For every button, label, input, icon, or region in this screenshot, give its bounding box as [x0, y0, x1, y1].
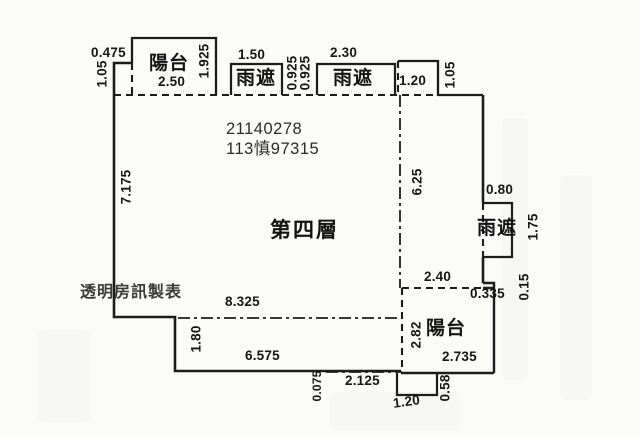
dim-canopy2-depth: 0.925: [298, 56, 312, 91]
dim-br-step-width: 0.335: [470, 287, 505, 301]
dim-balcony-br-height: 2.82: [409, 321, 423, 348]
dim-balcony-br-top: 2.40: [424, 270, 451, 284]
dim-notch-height: 1.05: [443, 61, 457, 88]
credit-watermark: 透明房訊製表: [80, 285, 182, 301]
dim-balcony-top-depth: 1.925: [197, 44, 211, 79]
dim-bottom-wall: 6.575: [245, 349, 280, 363]
dim-canopy1-width: 1.50: [238, 48, 265, 62]
dim-bottom-measure: 2.125: [345, 374, 380, 388]
floor-plan-canvas: 陽台 雨遮 雨遮 雨遮 陽台 第四層 21140278 113慎97315 透明…: [0, 0, 640, 436]
room-label-balcony-bottom: 陽台: [426, 319, 466, 338]
room-label-canopy-mid: 雨遮: [333, 69, 373, 88]
dim-bl-step-height: 1.80: [189, 325, 203, 352]
registry-number: 113慎97315: [226, 141, 319, 158]
case-number: 21140278: [226, 121, 302, 138]
floor-title: 第四層: [270, 220, 339, 241]
dim-duct-height: 0.58: [438, 374, 452, 401]
dim-interior-height: 6.25: [410, 168, 424, 195]
dim-left-wall: 7.175: [119, 170, 133, 205]
dim-br-step-height: 0.15: [517, 273, 531, 300]
dim-canopy-right-width: 0.80: [486, 183, 513, 197]
dim-interior-width: 8.325: [225, 295, 260, 309]
dim-notch-width: 1.20: [399, 74, 426, 88]
dim-balcony-top-width: 2.50: [158, 75, 185, 89]
outer-wall-left: [114, 63, 401, 371]
dim-tl-step-height: 1.05: [95, 60, 109, 87]
room-label-canopy-right: 雨遮: [477, 219, 517, 238]
dim-tl-step-width: 0.475: [91, 46, 126, 60]
room-label-canopy-left: 雨遮: [236, 69, 276, 88]
dim-canopy2-width: 2.30: [330, 46, 357, 60]
dim-canopy-right-depth: 1.75: [526, 213, 540, 240]
dim-balcony-br-width: 2.735: [442, 350, 477, 364]
dim-bottom-offset: 0.075: [311, 370, 323, 401]
room-label-balcony-top: 陽台: [149, 54, 189, 73]
